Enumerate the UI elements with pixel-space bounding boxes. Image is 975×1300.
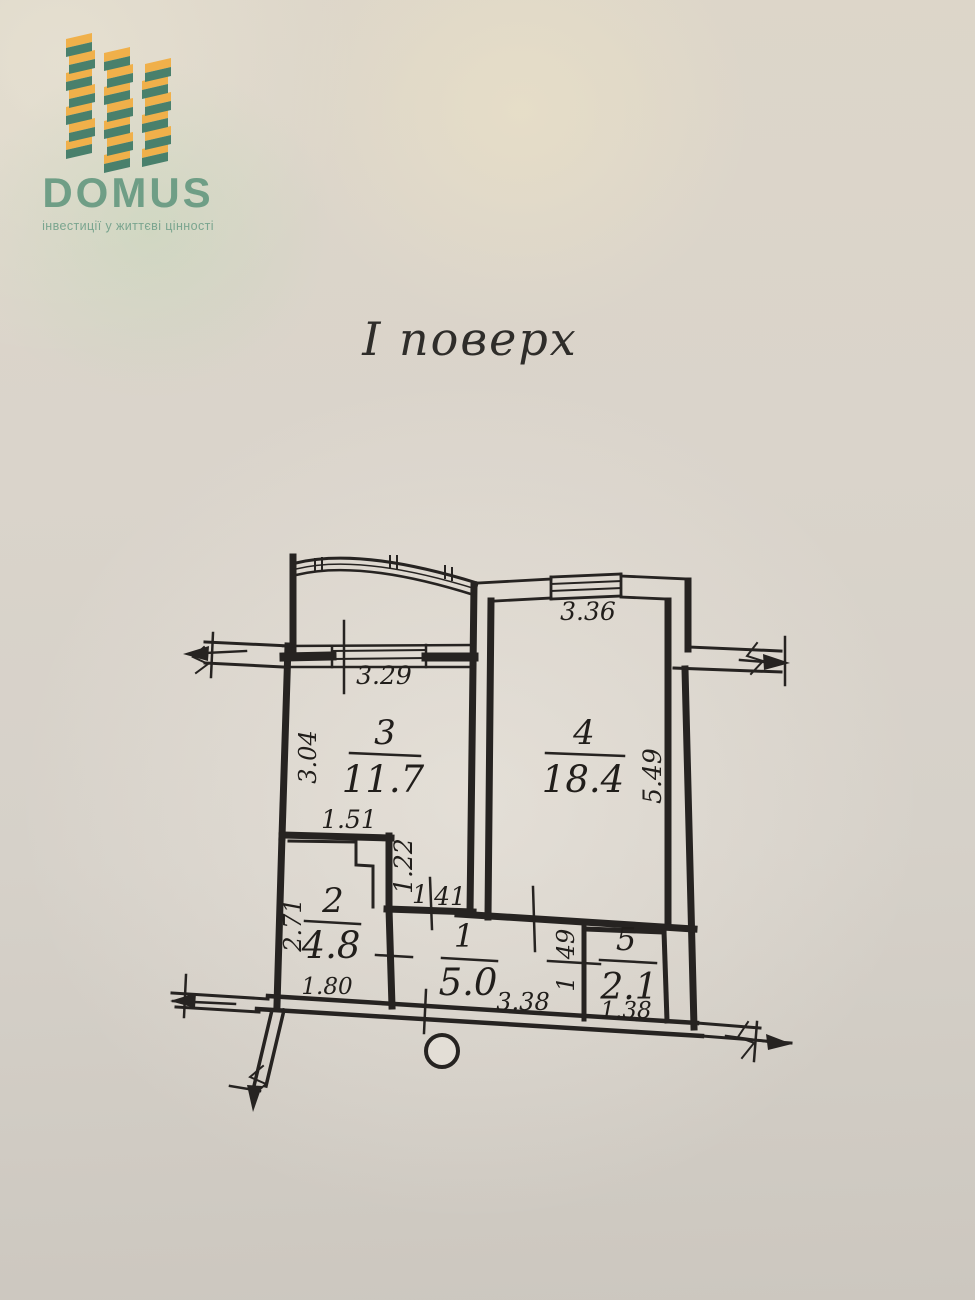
entrance-door-circle	[426, 1035, 458, 1067]
room-2-area: 4.8	[301, 924, 361, 967]
room-2-number: 2	[321, 881, 344, 921]
room-3-number: 3	[374, 713, 396, 753]
dim-room5-depth-a: 1	[552, 976, 580, 991]
dim-room3-depth: 3.04	[294, 730, 322, 783]
room-1-area: 5.0	[439, 961, 498, 1004]
dim-passage-width-b: 41	[433, 882, 466, 911]
dim-room4-depth: 5.49	[638, 748, 667, 804]
dim-room2-width: 1.80	[301, 974, 352, 1000]
room-4-area: 18.4	[542, 758, 624, 801]
room-1-number: 1	[454, 917, 474, 955]
dim-hall-width: 3.38	[496, 988, 549, 1016]
floor-plan-photo: DOMUS інвестиції у життєві цінності І по…	[0, 0, 975, 1300]
dim-room5-depth-b: 49	[552, 929, 580, 961]
dim-room4-window: 3.36	[560, 597, 616, 626]
dim-room3-window: 3.29	[356, 661, 412, 690]
dim-room5-width: 1.38	[600, 998, 651, 1024]
plan-walls	[172, 556, 791, 1096]
room-4-number: 4	[572, 713, 595, 753]
dim-room2-depth: 2.71	[279, 898, 307, 952]
arrow-down-icon	[247, 1085, 262, 1112]
dim-notch-depth: 1.22	[389, 838, 418, 894]
floor-plan-drawing: 3 11.7 4 18.4 2 4.8 1 5.0 5 2.1 3.36 3.2…	[0, 0, 975, 1300]
arrow-bottom-left-icon	[170, 993, 196, 1008]
room-5-number: 5	[616, 920, 636, 958]
room-3-area: 11.7	[342, 758, 425, 801]
wall-extensions	[172, 642, 791, 1086]
dim-notch-width: 1.51	[321, 805, 377, 834]
balcony-glazing	[296, 556, 477, 595]
